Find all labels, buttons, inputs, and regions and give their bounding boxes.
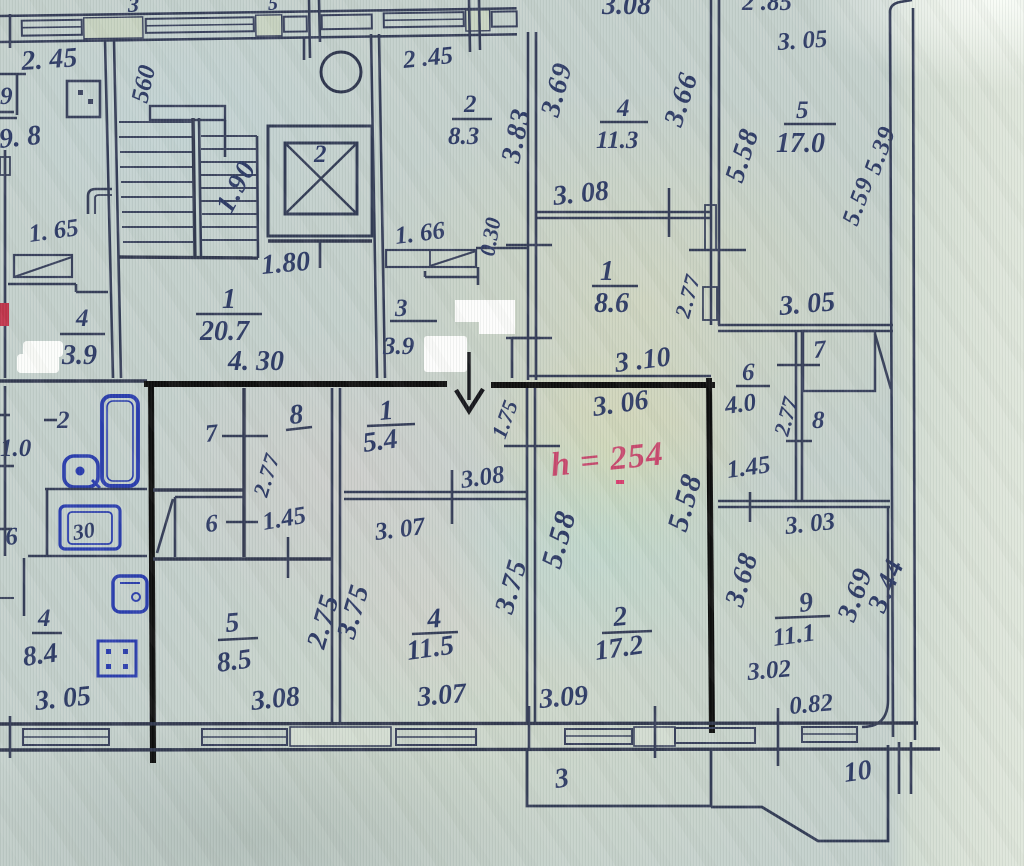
- svg-text:3: 3: [127, 0, 139, 17]
- svg-text:8.6: 8.6: [594, 288, 629, 319]
- svg-text:3.09: 3.09: [537, 680, 590, 715]
- svg-text:5.39: 5.39: [859, 122, 901, 178]
- svg-text:3.08: 3.08: [601, 0, 651, 21]
- svg-text:3 .10: 3 .10: [612, 341, 672, 379]
- svg-text:11.1: 11.1: [771, 619, 817, 652]
- svg-text:3.75: 3.75: [331, 581, 376, 643]
- svg-text:3.08: 3.08: [248, 681, 301, 717]
- svg-text:3. 08: 3. 08: [550, 175, 610, 212]
- svg-text:30: 30: [70, 517, 97, 545]
- svg-text:9: 9: [797, 587, 814, 619]
- svg-text:7: 7: [812, 336, 828, 364]
- svg-text:3. 06: 3. 06: [590, 384, 651, 423]
- svg-text:20.7: 20.7: [199, 316, 250, 347]
- svg-text:3. 05: 3. 05: [777, 286, 836, 322]
- svg-text:1. 65: 1. 65: [27, 214, 80, 248]
- svg-text:1: 1: [222, 284, 236, 315]
- svg-text:2: 2: [56, 407, 70, 434]
- svg-text:5.4: 5.4: [361, 423, 400, 459]
- svg-text:3.44: 3.44: [861, 554, 911, 618]
- svg-text:3. 07: 3. 07: [372, 513, 427, 546]
- svg-text:3.08: 3.08: [458, 461, 507, 494]
- svg-text:2: 2: [463, 91, 477, 118]
- svg-text:1.45: 1.45: [260, 502, 308, 536]
- svg-text:5.58: 5.58: [661, 470, 709, 535]
- svg-text:6: 6: [4, 523, 19, 551]
- svg-text:8: 8: [288, 399, 305, 431]
- svg-text:560: 560: [127, 62, 162, 105]
- svg-text:3.66: 3.66: [658, 68, 705, 131]
- svg-text:2.77: 2.77: [248, 450, 285, 501]
- svg-text:5: 5: [224, 607, 241, 639]
- svg-text:5.59: 5.59: [837, 173, 879, 229]
- svg-text:3. 03: 3. 03: [783, 508, 837, 540]
- svg-text:4.0: 4.0: [722, 389, 758, 420]
- svg-text:3: 3: [394, 295, 408, 322]
- svg-text:3.9: 3.9: [61, 340, 97, 371]
- svg-text:8.3: 8.3: [448, 123, 479, 150]
- svg-text:4: 4: [75, 305, 89, 332]
- svg-text:3. 05: 3. 05: [32, 680, 92, 717]
- svg-text:h = 254: h = 254: [549, 435, 666, 484]
- svg-text:5.58: 5.58: [535, 507, 583, 572]
- svg-text:9: 9: [0, 83, 13, 110]
- svg-text:3.68: 3.68: [719, 548, 765, 611]
- svg-text:11.3: 11.3: [596, 127, 638, 154]
- svg-text:0.30: 0.30: [474, 216, 505, 258]
- svg-text:3.02: 3.02: [745, 655, 792, 686]
- svg-text:3.83: 3.83: [495, 105, 537, 166]
- svg-text:1: 1: [378, 395, 395, 427]
- svg-text:1: 1: [600, 256, 614, 287]
- svg-text:3: 3: [552, 762, 571, 795]
- svg-text:2. 45: 2. 45: [19, 42, 78, 77]
- svg-text:4: 4: [616, 95, 630, 122]
- svg-text:5: 5: [796, 97, 809, 124]
- svg-text:6: 6: [204, 510, 219, 538]
- svg-text:7: 7: [204, 420, 221, 448]
- svg-text:2: 2: [611, 601, 629, 633]
- svg-text:5: 5: [268, 0, 278, 15]
- svg-text:17.0: 17.0: [776, 128, 825, 159]
- svg-text:4. 30: 4. 30: [227, 346, 284, 377]
- svg-text:2.77: 2.77: [669, 271, 705, 321]
- svg-text:2 .85: 2 .85: [741, 0, 792, 16]
- svg-text:3.69: 3.69: [535, 59, 579, 121]
- svg-text:3.07: 3.07: [415, 678, 469, 713]
- svg-text:5.58: 5.58: [719, 124, 765, 186]
- svg-text:1.45: 1.45: [725, 451, 772, 484]
- svg-text:8.5: 8.5: [215, 643, 254, 679]
- svg-text:9. 8: 9. 8: [0, 120, 43, 155]
- svg-text:0.82: 0.82: [788, 689, 834, 720]
- svg-text:6: 6: [742, 359, 755, 386]
- svg-text:8: 8: [812, 407, 825, 434]
- svg-text:4: 4: [425, 603, 443, 635]
- svg-text:1. 66: 1. 66: [393, 217, 446, 250]
- svg-text:1.75: 1.75: [486, 397, 523, 442]
- svg-text:1.80: 1.80: [260, 246, 312, 281]
- svg-text:3. 05: 3. 05: [776, 26, 829, 56]
- svg-text:17.2: 17.2: [593, 629, 646, 667]
- svg-text:4: 4: [37, 605, 51, 632]
- svg-text:2.77: 2.77: [768, 394, 803, 440]
- svg-text:1.90: 1.90: [210, 155, 263, 218]
- svg-text:8.4: 8.4: [21, 637, 60, 673]
- svg-text:2: 2: [313, 141, 327, 168]
- svg-text:2 .45: 2 .45: [401, 42, 455, 74]
- svg-text:3.9: 3.9: [382, 333, 415, 360]
- svg-text:11.5: 11.5: [405, 630, 456, 667]
- svg-text:10: 10: [842, 754, 874, 789]
